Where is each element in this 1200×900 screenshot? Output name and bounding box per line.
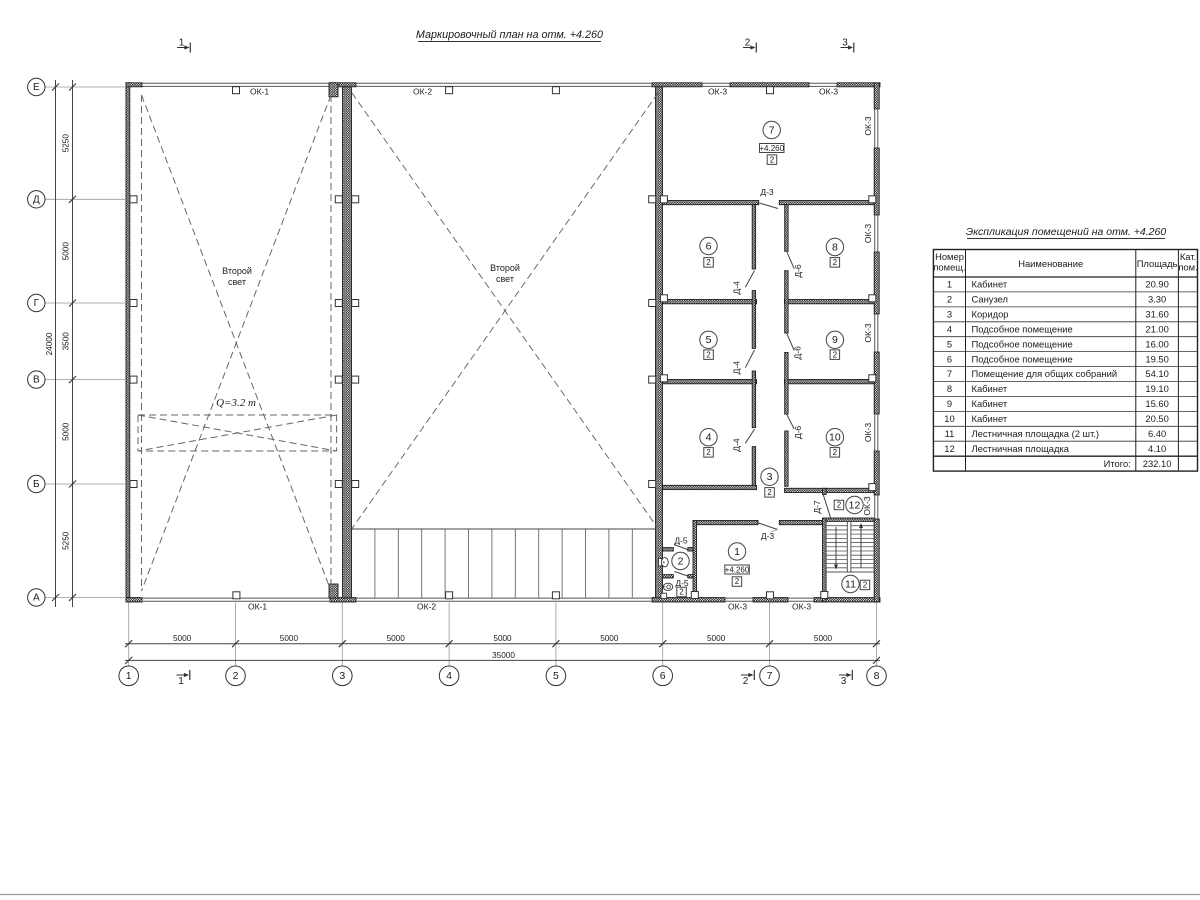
svg-text:9: 9 — [947, 398, 952, 409]
svg-text:Лестничная площадка: Лестничная площадка — [972, 443, 1070, 454]
svg-text:4: 4 — [947, 324, 952, 335]
svg-text:2: 2 — [233, 670, 239, 682]
svg-text:2: 2 — [863, 581, 868, 590]
svg-text:1: 1 — [179, 37, 185, 48]
svg-text:5250: 5250 — [62, 531, 71, 550]
svg-text:2: 2 — [767, 488, 772, 497]
svg-text:5000: 5000 — [280, 634, 299, 643]
svg-text:12: 12 — [944, 443, 954, 454]
svg-text:3: 3 — [841, 676, 847, 687]
svg-text:ОК-3: ОК-3 — [708, 87, 727, 97]
svg-text:5000: 5000 — [173, 634, 192, 643]
svg-text:Коридор: Коридор — [972, 309, 1009, 320]
svg-text:ОК-2: ОК-2 — [413, 87, 432, 97]
svg-text:ОК-3: ОК-3 — [863, 116, 873, 135]
svg-text:Д-4: Д-4 — [732, 281, 742, 295]
svg-text:11: 11 — [945, 428, 955, 439]
svg-text:ОК-3: ОК-3 — [863, 224, 873, 243]
svg-text:5: 5 — [553, 670, 559, 682]
svg-text:ОК-3: ОК-3 — [728, 602, 747, 612]
svg-text:10: 10 — [944, 413, 954, 424]
svg-text:А: А — [33, 593, 40, 604]
svg-text:Подсобное помещение: Подсобное помещение — [972, 338, 1073, 349]
svg-text:ОК-3: ОК-3 — [863, 323, 873, 342]
svg-text:12: 12 — [849, 499, 861, 511]
svg-text:2: 2 — [833, 350, 838, 359]
svg-text:5000: 5000 — [62, 242, 71, 261]
svg-text:Санузел: Санузел — [972, 294, 1009, 305]
svg-text:2: 2 — [837, 501, 842, 510]
svg-text:+4.260: +4.260 — [725, 565, 750, 574]
svg-text:Кат.: Кат. — [1180, 251, 1196, 262]
svg-text:2: 2 — [679, 588, 684, 597]
svg-text:ОК-3: ОК-3 — [819, 87, 838, 97]
svg-text:7: 7 — [769, 124, 775, 136]
svg-text:8: 8 — [874, 670, 880, 682]
svg-text:ОК-1: ОК-1 — [250, 87, 269, 97]
svg-text:помещ.: помещ. — [933, 262, 965, 273]
svg-text:10: 10 — [829, 431, 841, 443]
svg-text:6.40: 6.40 — [1148, 428, 1166, 439]
svg-text:7: 7 — [947, 368, 952, 379]
svg-text:В: В — [33, 375, 40, 386]
svg-text:1: 1 — [178, 676, 184, 687]
svg-text:5250: 5250 — [62, 134, 71, 153]
svg-text:2: 2 — [706, 258, 711, 267]
svg-text:5000: 5000 — [387, 634, 406, 643]
svg-text:5000: 5000 — [707, 634, 726, 643]
svg-text:свет: свет — [228, 277, 246, 287]
svg-text:20.50: 20.50 — [1145, 413, 1168, 424]
svg-text:Д-5: Д-5 — [674, 536, 688, 546]
svg-text:5000: 5000 — [814, 634, 833, 643]
svg-text:свет: свет — [496, 274, 514, 284]
svg-text:21.00: 21.00 — [1145, 324, 1168, 335]
svg-text:ОК-3: ОК-3 — [792, 602, 811, 612]
svg-text:54.10: 54.10 — [1145, 368, 1168, 379]
svg-text:3: 3 — [842, 37, 848, 48]
svg-text:Наименование: Наименование — [1018, 258, 1083, 269]
svg-text:Д-5: Д-5 — [675, 578, 689, 588]
svg-text:7: 7 — [767, 670, 773, 682]
svg-text:2: 2 — [735, 577, 740, 586]
svg-text:11: 11 — [845, 578, 856, 590]
svg-text:ОК-1: ОК-1 — [248, 602, 267, 612]
svg-text:5: 5 — [947, 338, 952, 349]
svg-text:6: 6 — [947, 353, 952, 364]
svg-text:19.10: 19.10 — [1145, 383, 1168, 394]
svg-text:Б: Б — [33, 479, 40, 490]
svg-text:Д-6: Д-6 — [793, 426, 803, 440]
svg-text:2: 2 — [833, 258, 838, 267]
svg-text:Е: Е — [33, 82, 40, 93]
svg-text:ОК-3: ОК-3 — [862, 496, 872, 515]
svg-text:Q=3.2 т: Q=3.2 т — [216, 397, 256, 409]
svg-text:2: 2 — [770, 155, 775, 164]
svg-text:Кабинет: Кабинет — [972, 383, 1008, 394]
svg-text:Лестничная площадка (2 шт.): Лестничная площадка (2 шт.) — [972, 428, 1100, 439]
svg-text:Д-7: Д-7 — [812, 500, 822, 514]
svg-text:20.90: 20.90 — [1145, 279, 1168, 290]
svg-text:пом.: пом. — [1178, 262, 1197, 273]
svg-text:Площадь: Площадь — [1137, 258, 1178, 269]
svg-text:15.60: 15.60 — [1145, 398, 1168, 409]
svg-text:232.10: 232.10 — [1143, 458, 1172, 469]
svg-text:Второй: Второй — [222, 266, 252, 276]
svg-text:4: 4 — [446, 670, 452, 682]
svg-text:Д-6: Д-6 — [793, 264, 803, 278]
svg-text:Кабинет: Кабинет — [972, 398, 1008, 409]
svg-text:3500: 3500 — [62, 332, 71, 351]
svg-text:3: 3 — [339, 670, 345, 682]
svg-text:ОК-2: ОК-2 — [417, 602, 436, 612]
svg-text:3.30: 3.30 — [1148, 294, 1166, 305]
svg-text:Номер: Номер — [935, 251, 964, 262]
svg-text:6: 6 — [706, 240, 712, 252]
svg-text:2: 2 — [678, 555, 684, 567]
svg-text:9: 9 — [832, 334, 838, 346]
svg-text:2: 2 — [706, 350, 711, 359]
svg-text:Д-3: Д-3 — [760, 187, 774, 197]
svg-text:Кабинет: Кабинет — [972, 413, 1008, 424]
svg-text:5000: 5000 — [62, 422, 71, 441]
svg-text:Д: Д — [33, 194, 40, 205]
svg-text:35000: 35000 — [492, 651, 515, 660]
svg-text:24000: 24000 — [45, 332, 54, 355]
svg-text:Д-4: Д-4 — [732, 361, 742, 375]
svg-text:5: 5 — [706, 334, 712, 346]
svg-text:Кабинет: Кабинет — [972, 279, 1008, 290]
svg-text:Экспликация помещений на отм.: Экспликация помещений на отм. +4.260 — [966, 226, 1166, 238]
svg-text:Второй: Второй — [490, 263, 520, 273]
svg-text:Г: Г — [34, 298, 40, 309]
svg-text:2: 2 — [743, 676, 749, 687]
svg-text:3: 3 — [767, 471, 773, 483]
svg-text:Д-4: Д-4 — [732, 438, 742, 452]
svg-text:5000: 5000 — [493, 634, 512, 643]
svg-text:+4.260: +4.260 — [759, 144, 784, 153]
svg-text:5000: 5000 — [600, 634, 619, 643]
svg-text:19.50: 19.50 — [1145, 353, 1168, 364]
svg-text:Подсобное помещение: Подсобное помещение — [972, 324, 1073, 335]
svg-text:4.10: 4.10 — [1148, 443, 1166, 454]
svg-text:Помещение для общих собраний: Помещение для общих собраний — [972, 368, 1118, 379]
svg-text:Подсобное помещение: Подсобное помещение — [972, 353, 1073, 364]
svg-text:8: 8 — [947, 383, 952, 394]
svg-text:16.00: 16.00 — [1145, 338, 1168, 349]
svg-text:6: 6 — [660, 670, 666, 682]
svg-text:Д-6: Д-6 — [793, 346, 803, 360]
svg-text:3: 3 — [947, 309, 952, 320]
svg-text:2: 2 — [745, 37, 751, 48]
svg-text:2: 2 — [947, 294, 952, 305]
svg-text:Итого:: Итого: — [1104, 458, 1131, 469]
svg-text:4: 4 — [706, 431, 712, 443]
svg-text:1: 1 — [126, 670, 132, 682]
svg-text:8: 8 — [832, 241, 838, 253]
svg-text:2: 2 — [833, 448, 838, 457]
svg-text:2: 2 — [706, 448, 711, 457]
svg-text:1: 1 — [947, 279, 952, 290]
svg-text:Д-3: Д-3 — [761, 531, 775, 541]
svg-text:31.60: 31.60 — [1145, 309, 1168, 320]
svg-text:Маркировочный план на отм. +4.: Маркировочный план на отм. +4.260 — [416, 29, 603, 41]
svg-text:1: 1 — [734, 546, 740, 558]
svg-text:ОК-3: ОК-3 — [863, 423, 873, 442]
